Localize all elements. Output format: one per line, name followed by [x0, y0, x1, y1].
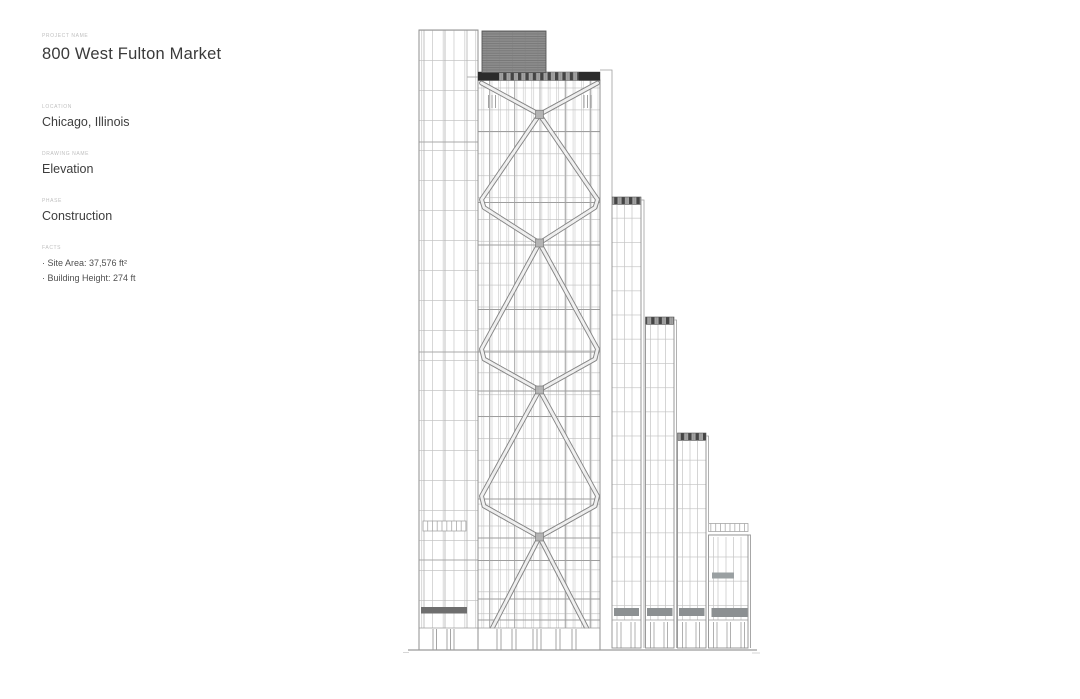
west-slab-wing: [419, 30, 478, 650]
ground-line: [403, 650, 760, 653]
tower-parapet-band: [478, 72, 600, 81]
main-tower: [478, 31, 612, 650]
setback-wing-1: [612, 197, 644, 649]
elevation-drawing: [0, 0, 1080, 699]
mechanical-penthouse: [482, 31, 546, 73]
setback-wing-4: [709, 524, 751, 649]
setback-wing-2: [646, 317, 677, 649]
setback-wing-3: [678, 433, 709, 649]
west-entry-band: [421, 607, 467, 614]
